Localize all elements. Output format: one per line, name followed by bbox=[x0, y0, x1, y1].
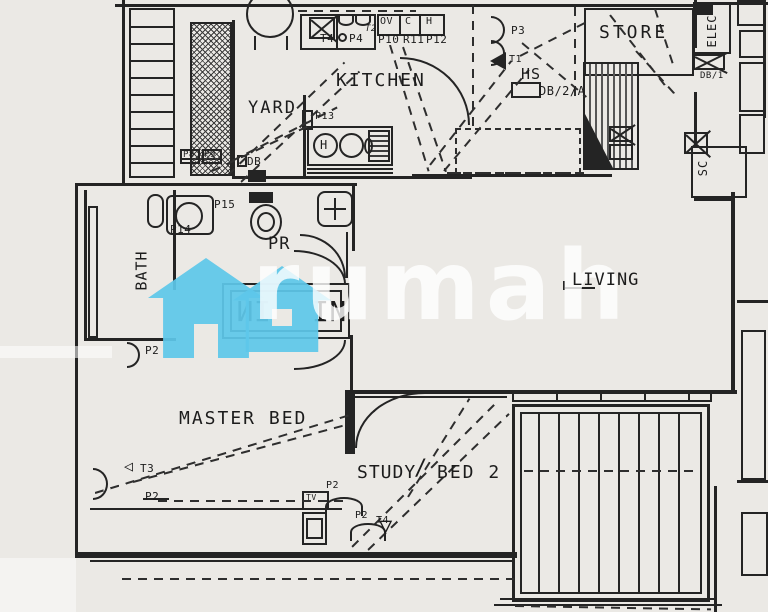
room-label-study-sep: / bbox=[414, 458, 428, 480]
fixture-outline bbox=[739, 114, 765, 154]
wall-segment bbox=[88, 208, 90, 336]
door-arc bbox=[294, 340, 346, 370]
wall-segment bbox=[75, 552, 517, 558]
wall-segment bbox=[346, 232, 348, 278]
point-label-p2-tv: P2 bbox=[326, 481, 339, 491]
solid-fill bbox=[249, 192, 273, 203]
fixture-dome bbox=[93, 468, 108, 500]
fixture-dome bbox=[127, 342, 140, 368]
point-label-db1: DB/1 bbox=[700, 72, 724, 81]
door-arc bbox=[400, 57, 470, 125]
wall-segment bbox=[96, 208, 98, 336]
fan-triangle-icon: ▽ bbox=[379, 516, 393, 538]
wall-segment bbox=[345, 390, 355, 454]
room-label-yard: YARD bbox=[248, 100, 297, 117]
door-arc bbox=[355, 392, 425, 448]
fixture-outline bbox=[737, 0, 765, 26]
wall-segment bbox=[714, 486, 717, 612]
fixture-outline bbox=[741, 330, 766, 480]
wall-segment bbox=[75, 183, 357, 186]
wall-segment bbox=[355, 396, 507, 398]
room-label-elec: ELEC bbox=[706, 11, 718, 51]
room-label-master-bed: MASTER BED bbox=[179, 410, 307, 428]
closet-in-label: IN bbox=[236, 298, 271, 326]
fixture-outline bbox=[520, 412, 702, 594]
point-label-p9: P9 bbox=[204, 151, 216, 160]
fixture-outline bbox=[147, 194, 164, 228]
closet-in-label: IN bbox=[312, 298, 347, 326]
point-label-p2-master: P2 bbox=[145, 491, 159, 502]
point-label-c: C bbox=[405, 17, 412, 27]
room-label-store: STORE bbox=[599, 24, 668, 42]
room-label-bed2: BED 2 bbox=[437, 464, 501, 482]
wall-segment bbox=[694, 198, 734, 201]
wall-segment bbox=[307, 168, 393, 170]
wall-segment bbox=[307, 172, 393, 174]
room-label-pr: PR bbox=[268, 236, 290, 253]
wall-segment bbox=[737, 480, 768, 483]
room-label-kitchen: KITCHEN bbox=[336, 72, 426, 90]
fan-triangle-icon: ◁ bbox=[124, 459, 134, 474]
wall-segment bbox=[350, 335, 353, 393]
wiring-dash bbox=[447, 172, 587, 174]
wall-segment bbox=[84, 338, 176, 341]
wall-segment bbox=[731, 192, 735, 392]
point-label-t2: T2 bbox=[365, 25, 377, 34]
point-label-p8: P8 bbox=[183, 151, 195, 160]
fixture-dome bbox=[338, 16, 354, 26]
wall-segment bbox=[563, 281, 565, 290]
point-label-tv: TV bbox=[306, 494, 317, 502]
fixture-outline bbox=[338, 33, 347, 42]
fixture-outline bbox=[609, 126, 633, 142]
point-label-db-yard: DB bbox=[247, 156, 261, 167]
point-label-t1: T1 bbox=[509, 55, 522, 65]
sink-h-label: H bbox=[320, 139, 328, 151]
wall-segment bbox=[412, 174, 612, 177]
point-label-p4: P4 bbox=[349, 33, 363, 44]
point-label-p15: P15 bbox=[214, 199, 235, 210]
wall-segment bbox=[115, 4, 700, 7]
point-label-p14: P14 bbox=[170, 224, 191, 235]
wiring-dash bbox=[122, 578, 514, 580]
wiring-dash bbox=[524, 470, 696, 472]
point-label-p10: P10 bbox=[378, 34, 399, 45]
wiring-dash bbox=[472, 5, 474, 133]
room-label-study: STUDY bbox=[357, 464, 416, 482]
point-label-p2-study: P2 bbox=[355, 511, 368, 521]
fixture-outline bbox=[364, 138, 373, 154]
wall-segment bbox=[122, 0, 125, 183]
fixture-outline bbox=[512, 390, 712, 402]
wall-segment bbox=[303, 95, 306, 178]
point-label-h: H bbox=[426, 17, 433, 27]
fixture-outline bbox=[306, 518, 323, 539]
fixture-outline bbox=[609, 144, 633, 160]
fixture-outline bbox=[129, 8, 175, 178]
point-label-p3: P3 bbox=[511, 25, 525, 36]
fixture-outline bbox=[739, 62, 765, 112]
room-label-living: LIVING bbox=[572, 272, 639, 289]
fixture-outline bbox=[317, 191, 353, 227]
fixture-outline bbox=[693, 54, 725, 70]
wall-segment bbox=[88, 336, 98, 338]
fixture-outline bbox=[339, 133, 364, 158]
point-label-r11: R11 bbox=[403, 34, 424, 45]
x-mark bbox=[695, 52, 728, 70]
fixture-outline bbox=[257, 212, 275, 232]
point-label-hs: HS bbox=[521, 67, 541, 82]
point-label-p13: P13 bbox=[315, 112, 335, 122]
wall-segment bbox=[737, 300, 768, 303]
wall-segment bbox=[254, 36, 256, 50]
fixture-outline bbox=[246, 0, 294, 38]
house-door-cutout bbox=[194, 324, 217, 358]
scan-artifact bbox=[0, 558, 76, 612]
scan-artifact bbox=[0, 346, 112, 358]
wiring-dash bbox=[133, 424, 346, 483]
wiring-dash bbox=[298, 10, 416, 12]
point-label-p12: P12 bbox=[426, 34, 447, 45]
fixture-outline bbox=[739, 30, 766, 58]
point-label-db2a: DB/2/A bbox=[539, 85, 585, 97]
room-label-sc: SC bbox=[697, 148, 709, 188]
wall-segment bbox=[75, 183, 78, 557]
point-label-t4: T4 bbox=[320, 33, 334, 44]
wall-segment bbox=[232, 20, 235, 178]
wall-segment bbox=[90, 560, 515, 562]
room-label-bath: BATH bbox=[135, 246, 150, 296]
solid-fill bbox=[248, 170, 266, 182]
wall-segment bbox=[286, 36, 288, 50]
point-label-ov: OV bbox=[380, 17, 393, 27]
point-label-p2-bath: P2 bbox=[145, 345, 159, 356]
wiring-dash bbox=[520, 22, 587, 57]
wall-segment bbox=[84, 190, 87, 340]
floorplan-scan: KITCHEN YARD BATH PR LIVING MASTER BED S… bbox=[0, 0, 768, 612]
fixture-outline bbox=[741, 512, 768, 576]
point-label-t3: T3 bbox=[140, 463, 154, 474]
